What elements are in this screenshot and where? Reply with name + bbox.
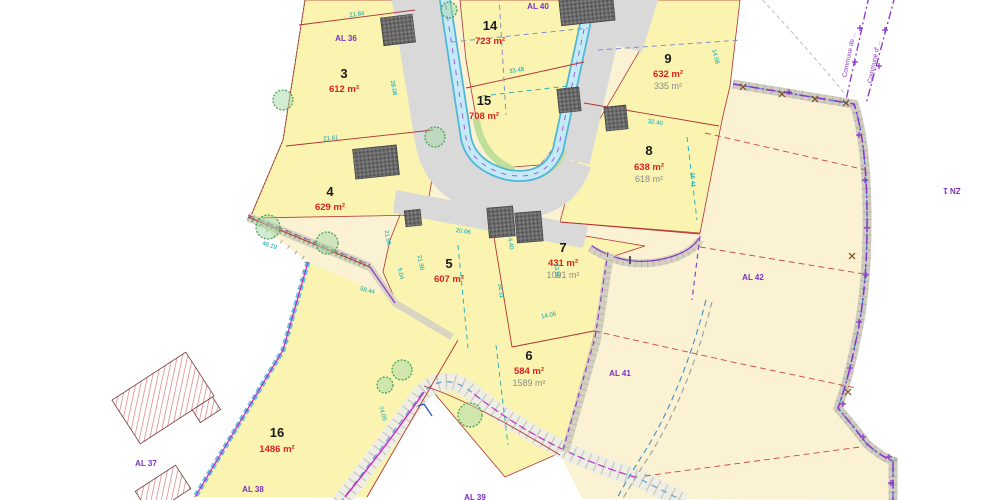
lot-area: 638 m² [634,162,664,173]
parcel-ref: AL 40 [527,2,549,11]
lot-area: 612 m² [329,84,359,95]
lot-number: 3 [340,66,347,81]
parcel-areas [195,0,893,500]
commune-label: Commune d' ... [867,39,883,84]
tree-icon [316,232,338,254]
tree-icon [256,215,280,239]
lot-number: 5 [445,256,452,271]
hatched-building [112,352,222,456]
cadastral-map: 3 612 m² 4 629 m² 5 607 m² 6 584 m² 1589… [0,0,1000,500]
building [604,105,628,131]
tree-icon [377,377,393,393]
tree-icon [392,360,412,380]
commune-boundary-labels: Commune de ... Commune d' ... [841,31,882,84]
plan-canvas: 3 612 m² 4 629 m² 5 607 m² 6 584 m² 1589… [0,0,1000,500]
lot-number: 15 [477,93,491,108]
tree-icon [273,90,293,110]
parcel-ref: AL 38 [242,485,264,494]
parcel-ref: AL 37 [135,459,157,468]
lot-area: 607 m² [434,274,464,285]
dimension-label: 48.19 [261,241,278,251]
tree-icon [458,403,482,427]
lot-area-secondary: 618 m² [635,174,663,184]
lot-area: 723 m² [475,36,505,47]
building [404,209,422,227]
parcel-ref: AL 42 [742,273,764,282]
building [487,206,516,238]
lot-number: 14 [483,18,498,33]
parcel-ref: AL 36 [335,34,357,43]
parcel-ref: AL 41 [609,369,631,378]
building [353,145,400,179]
hatched-building [135,465,191,500]
lot-area-secondary: 335 m² [654,81,682,91]
tree-icon [441,2,457,18]
lot-number: 4 [326,184,334,199]
building [557,87,581,113]
lot-number: 7 [559,240,566,255]
faint-old-boundary [758,0,846,95]
commune-label: Commune de ... [841,31,858,78]
lot-number: 8 [645,143,652,158]
northeast-commune-line-2 [866,0,895,104]
parcel-ref: AL 39 [464,493,486,500]
tree-icon [425,127,445,147]
building [380,14,415,46]
lot-area-secondary: 1589 m² [512,378,545,388]
lot-number: 9 [664,51,671,66]
parcel-ref: ZN 1 [943,186,961,195]
lot-area: 632 m² [653,69,683,80]
building [515,211,544,243]
lot-area: 708 m² [469,111,499,122]
lot-area: 629 m² [315,202,345,213]
lot-area: 1486 m² [259,444,294,455]
lot-area: 584 m² [514,366,544,377]
lot-number: 16 [270,425,284,440]
lot-area-secondary: 1091 m² [546,270,579,280]
lot-number: 6 [525,348,532,363]
